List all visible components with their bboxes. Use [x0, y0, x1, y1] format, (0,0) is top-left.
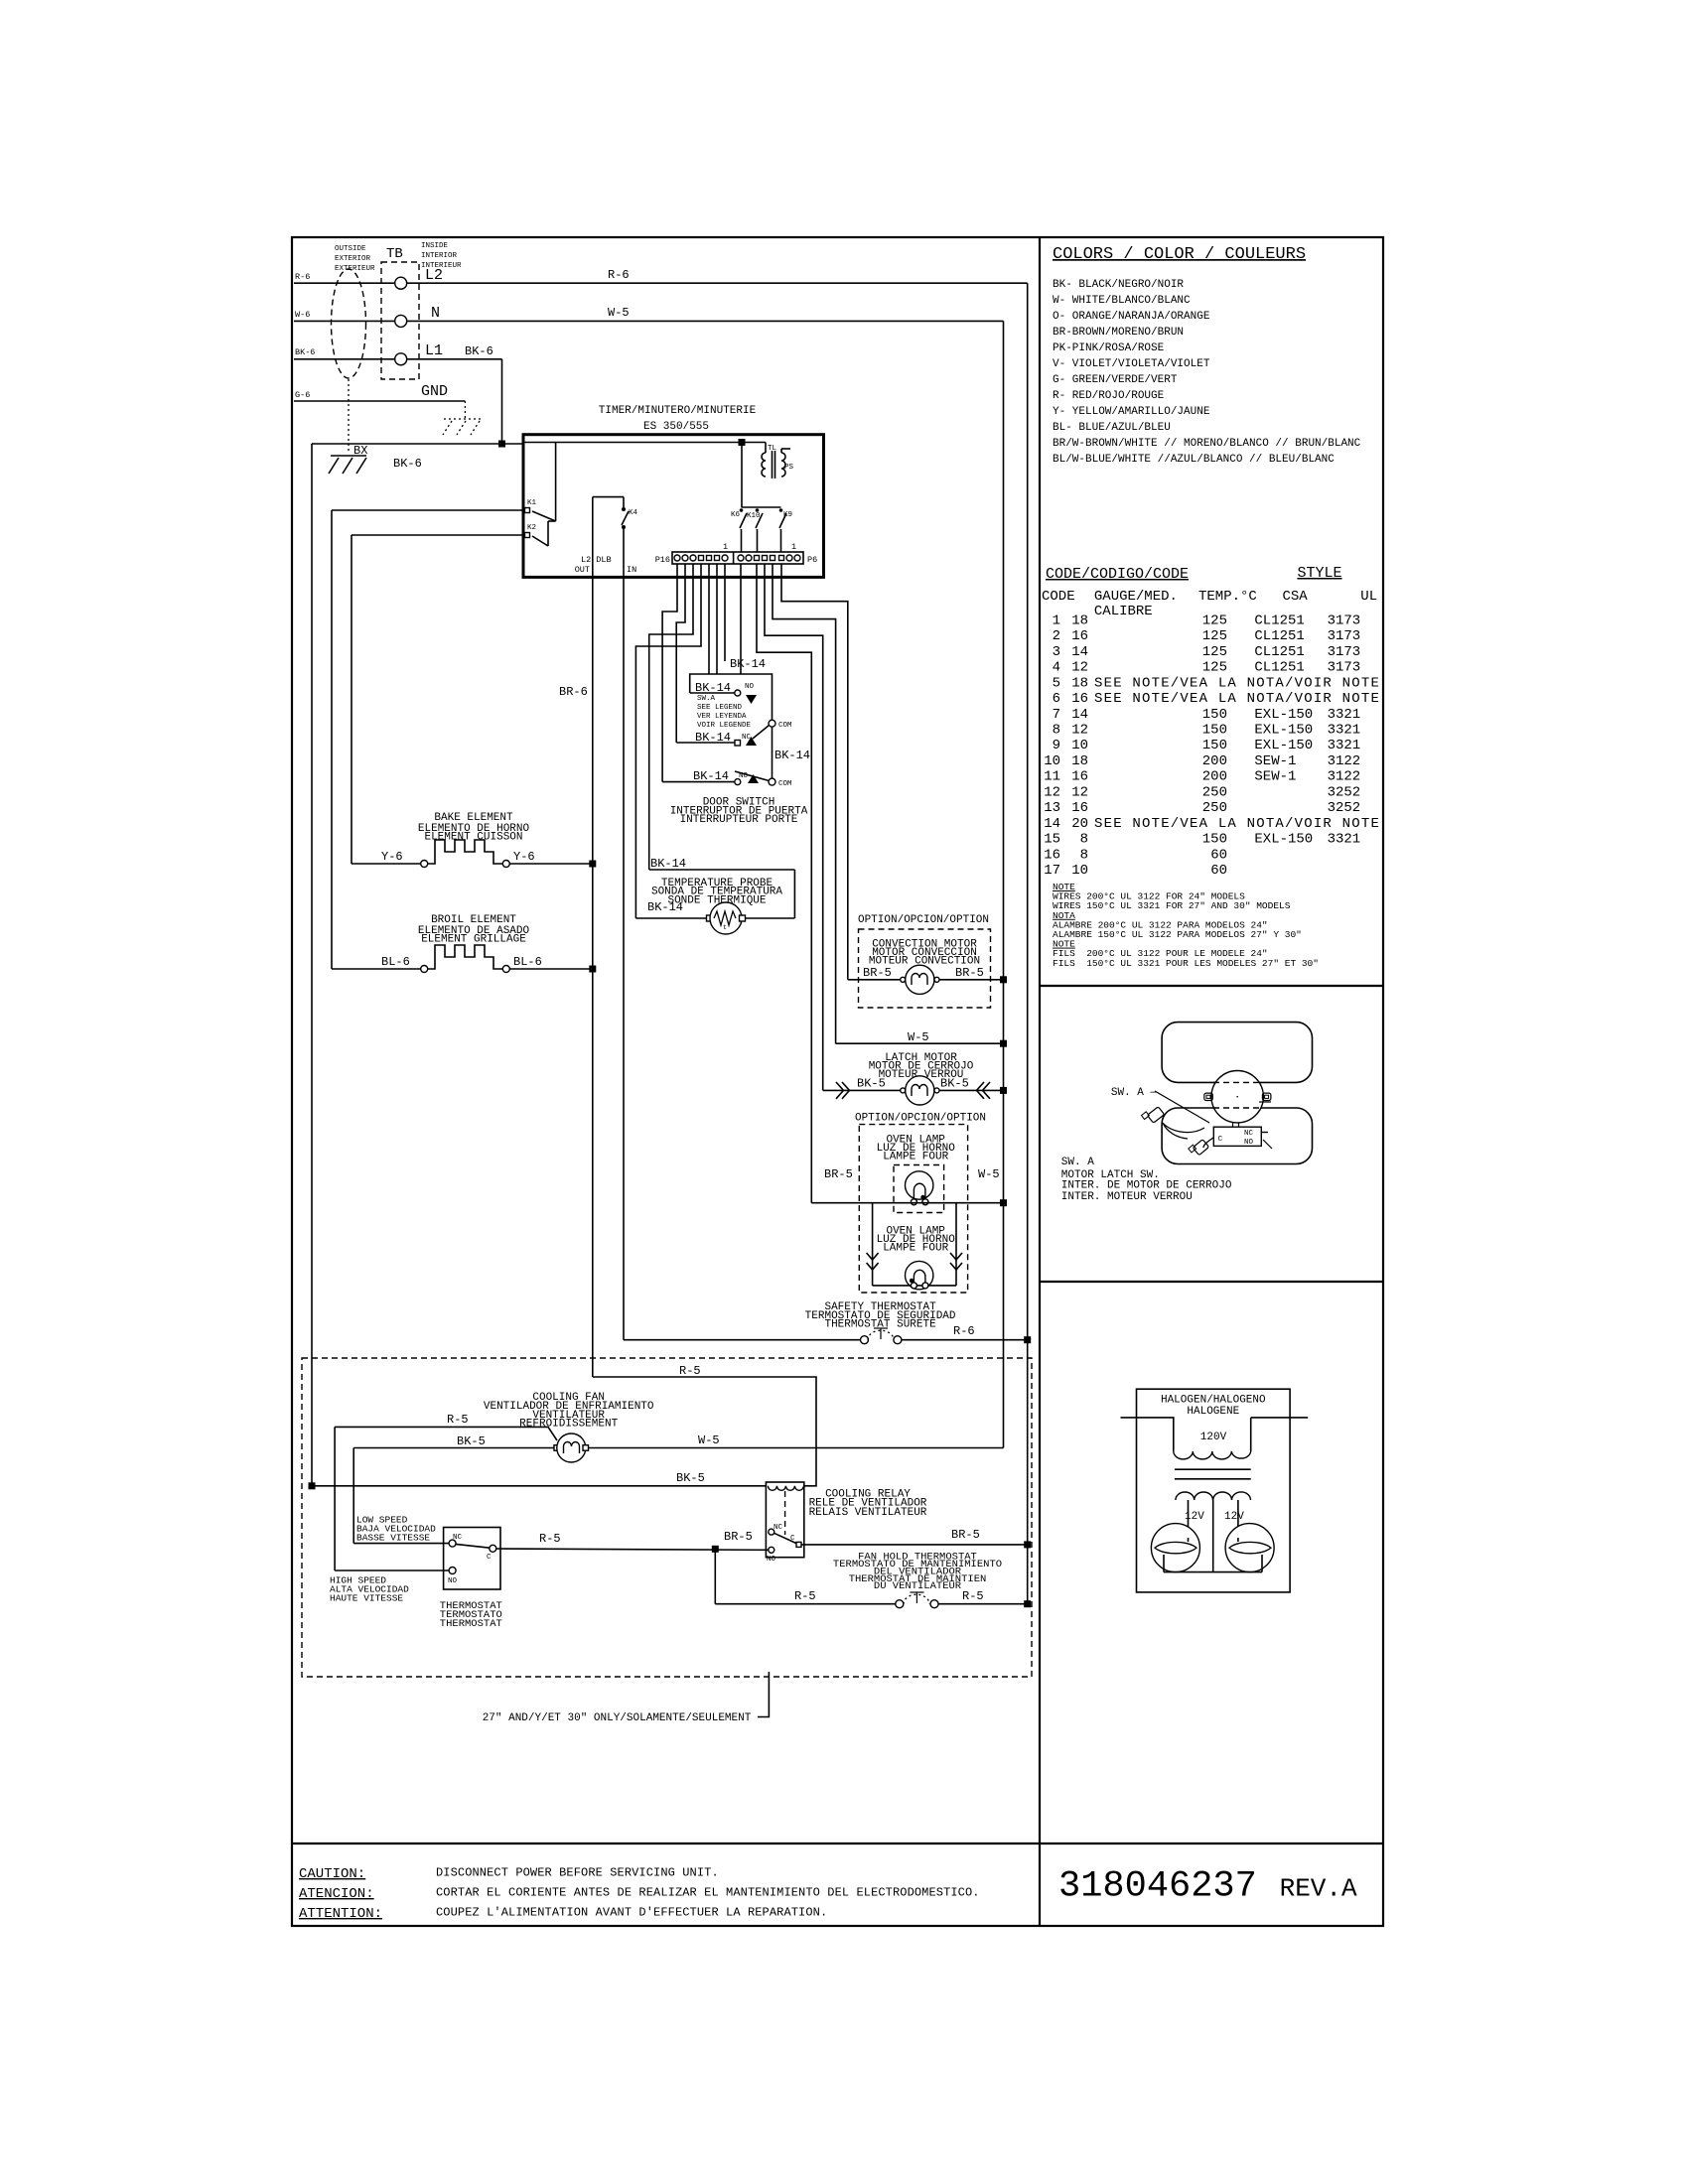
svg-text:18: 18	[1071, 675, 1088, 691]
svg-text:BK-14: BK-14	[650, 857, 686, 871]
svg-text:3122: 3122	[1328, 769, 1361, 785]
svg-text:COUPEZ L'ALIMENTATION AVANT D': COUPEZ L'ALIMENTATION AVANT D'EFFECTUER …	[436, 1906, 827, 1920]
svg-text:K6: K6	[731, 511, 741, 519]
svg-text:125: 125	[1202, 660, 1227, 676]
svg-text:EXL-150: EXL-150	[1254, 723, 1313, 739]
svg-text:CSA: CSA	[1283, 589, 1309, 605]
svg-text:14: 14	[1044, 816, 1060, 832]
svg-text:16: 16	[1071, 628, 1088, 644]
svg-text:14: 14	[1071, 644, 1088, 660]
svg-text:3252: 3252	[1328, 784, 1361, 800]
svg-text:CL1251: CL1251	[1254, 660, 1304, 676]
svg-text:1: 1	[723, 542, 728, 552]
svg-text:COLORS / COLOR / COULEURS: COLORS / COLOR / COULEURS	[1053, 245, 1306, 264]
svg-text:125: 125	[1202, 613, 1227, 628]
svg-text:INSIDE: INSIDE	[421, 242, 449, 250]
svg-text:VOIR LEGENDE: VOIR LEGENDE	[697, 722, 752, 730]
svg-text:THERMOSTAT: THERMOSTAT	[440, 1618, 502, 1630]
svg-text:4: 4	[1053, 660, 1060, 676]
svg-text:BL- BLUE/AZUL/BLEU: BL- BLUE/AZUL/BLEU	[1053, 422, 1171, 434]
svg-text:TIMER/MINUTERO/MINUTERIE: TIMER/MINUTERO/MINUTERIE	[599, 405, 757, 417]
svg-text:V- VIOLET/VIOLETA/VIOLET: V- VIOLET/VIOLETA/VIOLET	[1053, 358, 1210, 370]
svg-text:CAUTION:: CAUTION:	[299, 1866, 365, 1882]
svg-text:VER LEYENDA: VER LEYENDA	[697, 713, 747, 721]
svg-text:318046237: 318046237	[1058, 1866, 1257, 1908]
svg-text:1: 1	[1053, 613, 1060, 628]
svg-text:INTER. DE MOTOR DE CERROJO: INTER. DE MOTOR DE CERROJO	[1061, 1180, 1232, 1192]
svg-text:BR-6: BR-6	[559, 685, 588, 699]
svg-text:W- WHITE/BLANCO/BLANC: W- WHITE/BLANCO/BLANC	[1053, 295, 1191, 307]
svg-text:ELEMENT CUISSON: ELEMENT CUISSON	[424, 832, 522, 844]
svg-text:RELAIS VENTILATEUR: RELAIS VENTILATEUR	[809, 1507, 927, 1519]
svg-text:K10: K10	[747, 512, 761, 520]
svg-text:150: 150	[1202, 723, 1227, 739]
svg-text:INTERRUPTEUR PORTE: INTERRUPTEUR PORTE	[680, 814, 798, 826]
svg-text:120V: 120V	[1200, 1432, 1227, 1443]
svg-text:WIRES 150°C UL 3321 FOR 27" AN: WIRES 150°C UL 3321 FOR 27" AND 30" MODE…	[1053, 900, 1291, 911]
svg-text:BK-5: BK-5	[940, 1077, 969, 1091]
svg-text:R-6: R-6	[295, 272, 310, 282]
svg-text:3252: 3252	[1328, 800, 1361, 816]
svg-text:16: 16	[1071, 769, 1088, 785]
svg-text:HAUTE VITESSE: HAUTE VITESSE	[330, 1593, 403, 1604]
svg-text:O- ORANGE/NARANJA/ORANGE: O- ORANGE/NARANJA/ORANGE	[1053, 311, 1210, 323]
svg-text:COM: COM	[778, 722, 792, 730]
svg-text:t': t'	[723, 924, 731, 931]
svg-text:R-5: R-5	[679, 1364, 701, 1378]
svg-text:EXL-150: EXL-150	[1254, 832, 1313, 848]
svg-text:R- RED/ROJO/ROUGE: R- RED/ROJO/ROUGE	[1053, 390, 1165, 402]
svg-text:3173: 3173	[1328, 644, 1361, 660]
svg-text:BL-6: BL-6	[381, 955, 410, 969]
svg-text:150: 150	[1202, 832, 1227, 848]
svg-text:P16: P16	[655, 555, 670, 565]
svg-text:BK-14: BK-14	[774, 749, 810, 762]
svg-text:FILS 150°C UL 3321 POUR LES M: FILS 150°C UL 3321 POUR LES MODELES 27" …	[1053, 958, 1319, 969]
svg-text:3173: 3173	[1328, 660, 1361, 676]
svg-text:NO: NO	[1244, 1139, 1254, 1147]
svg-text:W-6: W-6	[295, 310, 310, 320]
svg-text:200: 200	[1202, 753, 1227, 769]
svg-text:ATTENTION:: ATTENTION:	[299, 1906, 382, 1922]
svg-text:13: 13	[1044, 800, 1060, 816]
svg-text:BR-5: BR-5	[724, 1530, 753, 1544]
svg-text:OPTION/OPCION/OPTION: OPTION/OPCION/OPTION	[855, 1113, 986, 1125]
svg-text:8: 8	[1053, 723, 1060, 739]
svg-text:16: 16	[1044, 847, 1060, 863]
svg-text:12: 12	[1071, 723, 1088, 739]
svg-text:L2: L2	[425, 267, 443, 284]
svg-text:11: 11	[1044, 769, 1060, 785]
svg-text:12: 12	[1071, 784, 1088, 800]
svg-text:GAUGE/MED.: GAUGE/MED.	[1094, 589, 1178, 605]
svg-text:G-6: G-6	[295, 390, 310, 400]
svg-text:BASSE VITESSE: BASSE VITESSE	[356, 1533, 430, 1544]
svg-text:C: C	[790, 1535, 795, 1543]
svg-text:8: 8	[1080, 847, 1088, 863]
svg-text:W-5: W-5	[908, 1030, 929, 1044]
svg-text:3173: 3173	[1328, 613, 1361, 628]
svg-text:CORTAR EL CORIENTE ANTES DE RE: CORTAR EL CORIENTE ANTES DE REALIZAR EL …	[436, 1886, 980, 1900]
svg-text:GND: GND	[421, 383, 448, 400]
svg-text:15: 15	[1044, 832, 1060, 848]
svg-text:CODE: CODE	[1042, 589, 1075, 605]
svg-text:7: 7	[1053, 707, 1060, 723]
svg-text:W-5: W-5	[698, 1433, 720, 1447]
svg-text:REV.A: REV.A	[1280, 1874, 1357, 1904]
svg-text:SW. A: SW. A	[1061, 1157, 1094, 1168]
svg-text:SEE NOTE/VEA LA NOTA/VOIR NOTE: SEE NOTE/VEA LA NOTA/VOIR NOTE	[1094, 816, 1380, 832]
svg-text:R-5: R-5	[962, 1589, 984, 1603]
svg-text:12: 12	[1044, 784, 1060, 800]
svg-text:150: 150	[1202, 738, 1227, 753]
svg-text:CL1251: CL1251	[1254, 628, 1304, 644]
svg-text:CL1251: CL1251	[1254, 644, 1304, 660]
svg-text:BK-14: BK-14	[647, 900, 683, 914]
svg-text:EXTERIOR: EXTERIOR	[335, 255, 371, 263]
svg-text:BR-5: BR-5	[863, 966, 892, 980]
svg-text:3122: 3122	[1328, 753, 1361, 769]
svg-text:UL: UL	[1360, 589, 1377, 605]
svg-text:INTERIOR: INTERIOR	[421, 252, 458, 260]
svg-text:C: C	[487, 1554, 492, 1562]
svg-text:R-5: R-5	[539, 1532, 561, 1546]
svg-text:12: 12	[1071, 660, 1088, 676]
svg-text:PK-PINK/ROSA/ROSE: PK-PINK/ROSA/ROSE	[1053, 342, 1165, 354]
svg-text:K2: K2	[527, 524, 536, 532]
svg-text:ALAMBRE 150°C UL 3122 PARA MOD: ALAMBRE 150°C UL 3122 PARA MODELOS 27" Y…	[1053, 929, 1302, 940]
svg-text:NC: NC	[1244, 1130, 1254, 1138]
svg-text:10: 10	[1071, 738, 1088, 753]
svg-text:R-5: R-5	[447, 1413, 469, 1427]
svg-text:SEE NOTE/VEA LA NOTA/VOIR NOTE: SEE NOTE/VEA LA NOTA/VOIR NOTE	[1094, 675, 1380, 691]
svg-text:8: 8	[1080, 832, 1088, 848]
svg-text:L1: L1	[425, 342, 443, 359]
svg-text:18: 18	[1071, 753, 1088, 769]
svg-text:OUTSIDE: OUTSIDE	[335, 245, 366, 253]
svg-text:BL-6: BL-6	[513, 955, 542, 969]
svg-text:BR/W-BROWN/WHITE // MORENO/BLA: BR/W-BROWN/WHITE // MORENO/BLANCO // BRU…	[1053, 438, 1361, 450]
svg-text:R-5: R-5	[794, 1589, 816, 1603]
svg-text:L2 DLB: L2 DLB	[581, 555, 612, 565]
svg-text:SEW-1: SEW-1	[1254, 769, 1296, 785]
svg-text:200: 200	[1202, 769, 1227, 785]
svg-text:DU VENTILATEUR: DU VENTILATEUR	[874, 1580, 962, 1592]
svg-text:CL1251: CL1251	[1254, 613, 1304, 628]
svg-text:BK-5: BK-5	[676, 1471, 705, 1485]
svg-text:10: 10	[1071, 863, 1088, 879]
svg-text:BK-5: BK-5	[457, 1434, 486, 1448]
svg-text:60: 60	[1210, 847, 1227, 863]
svg-text:BR-5: BR-5	[951, 1528, 980, 1542]
svg-text:REFROIDISSEMENT: REFROIDISSEMENT	[519, 1419, 618, 1431]
svg-text:ES 350/555: ES 350/555	[643, 421, 709, 433]
svg-text:NO: NO	[448, 1577, 458, 1585]
svg-text:3321: 3321	[1328, 707, 1361, 723]
svg-text:250: 250	[1202, 784, 1227, 800]
svg-text:BK-6: BK-6	[465, 344, 493, 358]
svg-text:DISCONNECT POWER BEFORE SERVIC: DISCONNECT POWER BEFORE SERVICING UNIT.	[436, 1866, 719, 1880]
svg-text:3321: 3321	[1328, 832, 1361, 848]
svg-text:BR-BROWN/MORENO/BRUN: BR-BROWN/MORENO/BRUN	[1053, 327, 1184, 339]
svg-text:18: 18	[1071, 613, 1088, 628]
svg-text:EXTERIEUR: EXTERIEUR	[335, 265, 375, 273]
svg-text:3321: 3321	[1328, 723, 1361, 739]
svg-text:20: 20	[1071, 816, 1088, 832]
svg-text:9: 9	[1053, 738, 1060, 753]
svg-text:17: 17	[1044, 863, 1060, 879]
svg-text:STYLE: STYLE	[1298, 565, 1342, 582]
svg-text:NC: NC	[774, 1524, 783, 1532]
svg-text:6: 6	[1053, 691, 1060, 707]
svg-text:PS: PS	[784, 464, 794, 472]
svg-text:ATENCION:: ATENCION:	[299, 1886, 374, 1902]
svg-text:5: 5	[1053, 675, 1060, 691]
svg-text:N: N	[431, 305, 440, 322]
svg-text:Y-6: Y-6	[513, 850, 535, 864]
svg-text:Y- YELLOW/AMARILLO/JAUNE: Y- YELLOW/AMARILLO/JAUNE	[1053, 406, 1210, 418]
svg-text:LAMPE FOUR: LAMPE FOUR	[883, 1243, 948, 1255]
svg-text:150: 150	[1202, 707, 1227, 723]
svg-text:BR-5: BR-5	[955, 966, 984, 980]
svg-text:Y-6: Y-6	[381, 850, 403, 864]
svg-text:SW.A: SW.A	[697, 695, 716, 703]
svg-text:12V: 12V	[1224, 1511, 1244, 1523]
svg-text:CALIBRE: CALIBRE	[1094, 604, 1153, 619]
svg-text:OPTION/OPCION/OPTION: OPTION/OPCION/OPTION	[858, 914, 989, 926]
svg-text:TEMP.°C: TEMP.°C	[1198, 589, 1257, 605]
svg-text:3: 3	[1053, 644, 1060, 660]
svg-text:HALOGENE: HALOGENE	[1187, 1406, 1239, 1418]
svg-text:27" AND/Y/ET 30" ONLY/SOLAMENT: 27" AND/Y/ET 30" ONLY/SOLAMENTE/SEULEMEN…	[483, 1712, 752, 1724]
svg-text:125: 125	[1202, 628, 1227, 644]
svg-text:3173: 3173	[1328, 628, 1361, 644]
svg-text:K4: K4	[629, 509, 638, 517]
svg-text:BK-6: BK-6	[295, 347, 315, 357]
svg-text:INTER. MOTEUR VERROU: INTER. MOTEUR VERROU	[1061, 1191, 1193, 1203]
svg-text:BL/W-BLUE/WHITE //AZUL/BLANCO: BL/W-BLUE/WHITE //AZUL/BLANCO // BLEU/BL…	[1053, 454, 1335, 466]
svg-text:W-5: W-5	[608, 306, 630, 320]
svg-text:SEE NOTE/VEA LA NOTA/VOIR NOTE: SEE NOTE/VEA LA NOTA/VOIR NOTE	[1094, 691, 1380, 707]
svg-text:BK-14: BK-14	[730, 657, 766, 671]
svg-text:2: 2	[1053, 628, 1060, 644]
svg-text:3321: 3321	[1328, 738, 1361, 753]
svg-text:SW. A —: SW. A —	[1111, 1087, 1158, 1099]
svg-text:HALOGEN/HALOGENO: HALOGEN/HALOGENO	[1161, 1395, 1266, 1407]
svg-text:10: 10	[1044, 753, 1060, 769]
svg-text:R-6: R-6	[608, 268, 630, 282]
svg-text:COM: COM	[778, 780, 792, 788]
svg-text:BK-6: BK-6	[393, 457, 422, 471]
svg-text:C: C	[1218, 1136, 1223, 1144]
svg-text:K1: K1	[527, 499, 537, 507]
svg-text:R-6: R-6	[953, 1324, 975, 1338]
svg-text:NO: NO	[745, 683, 755, 691]
svg-text:14: 14	[1071, 707, 1088, 723]
svg-text:BK-5: BK-5	[857, 1077, 886, 1091]
svg-text:SEE LEGEND: SEE LEGEND	[697, 704, 743, 712]
svg-text:TB: TB	[386, 246, 403, 262]
svg-text:16: 16	[1071, 800, 1088, 816]
svg-text:G- GREEN/VERDE/VERT: G- GREEN/VERDE/VERT	[1053, 374, 1178, 386]
svg-text:BK- BLACK/NEGRO/NOIR: BK- BLACK/NEGRO/NOIR	[1053, 279, 1184, 291]
svg-text:NO: NO	[767, 1556, 776, 1564]
svg-text:125: 125	[1202, 644, 1227, 660]
svg-text:60: 60	[1210, 863, 1227, 879]
svg-text:LAMPE FOUR: LAMPE FOUR	[883, 1152, 948, 1163]
svg-text:BR-5: BR-5	[824, 1167, 853, 1181]
svg-text:16: 16	[1071, 691, 1088, 707]
svg-text:1: 1	[791, 542, 796, 552]
svg-text:250: 250	[1202, 800, 1227, 816]
svg-text:P6: P6	[807, 555, 817, 565]
svg-text:W-5: W-5	[978, 1167, 1000, 1181]
svg-text:ELEMENT GRILLAGE: ELEMENT GRILLAGE	[421, 934, 526, 946]
svg-text:IN: IN	[627, 565, 636, 575]
svg-text:EXL-150: EXL-150	[1254, 707, 1313, 723]
svg-text:EXL-150: EXL-150	[1254, 738, 1313, 753]
svg-text:CODE/CODIGO/CODE: CODE/CODIGO/CODE	[1046, 566, 1189, 583]
svg-text:SEW-1: SEW-1	[1254, 753, 1296, 769]
svg-text:OUT: OUT	[575, 565, 590, 575]
